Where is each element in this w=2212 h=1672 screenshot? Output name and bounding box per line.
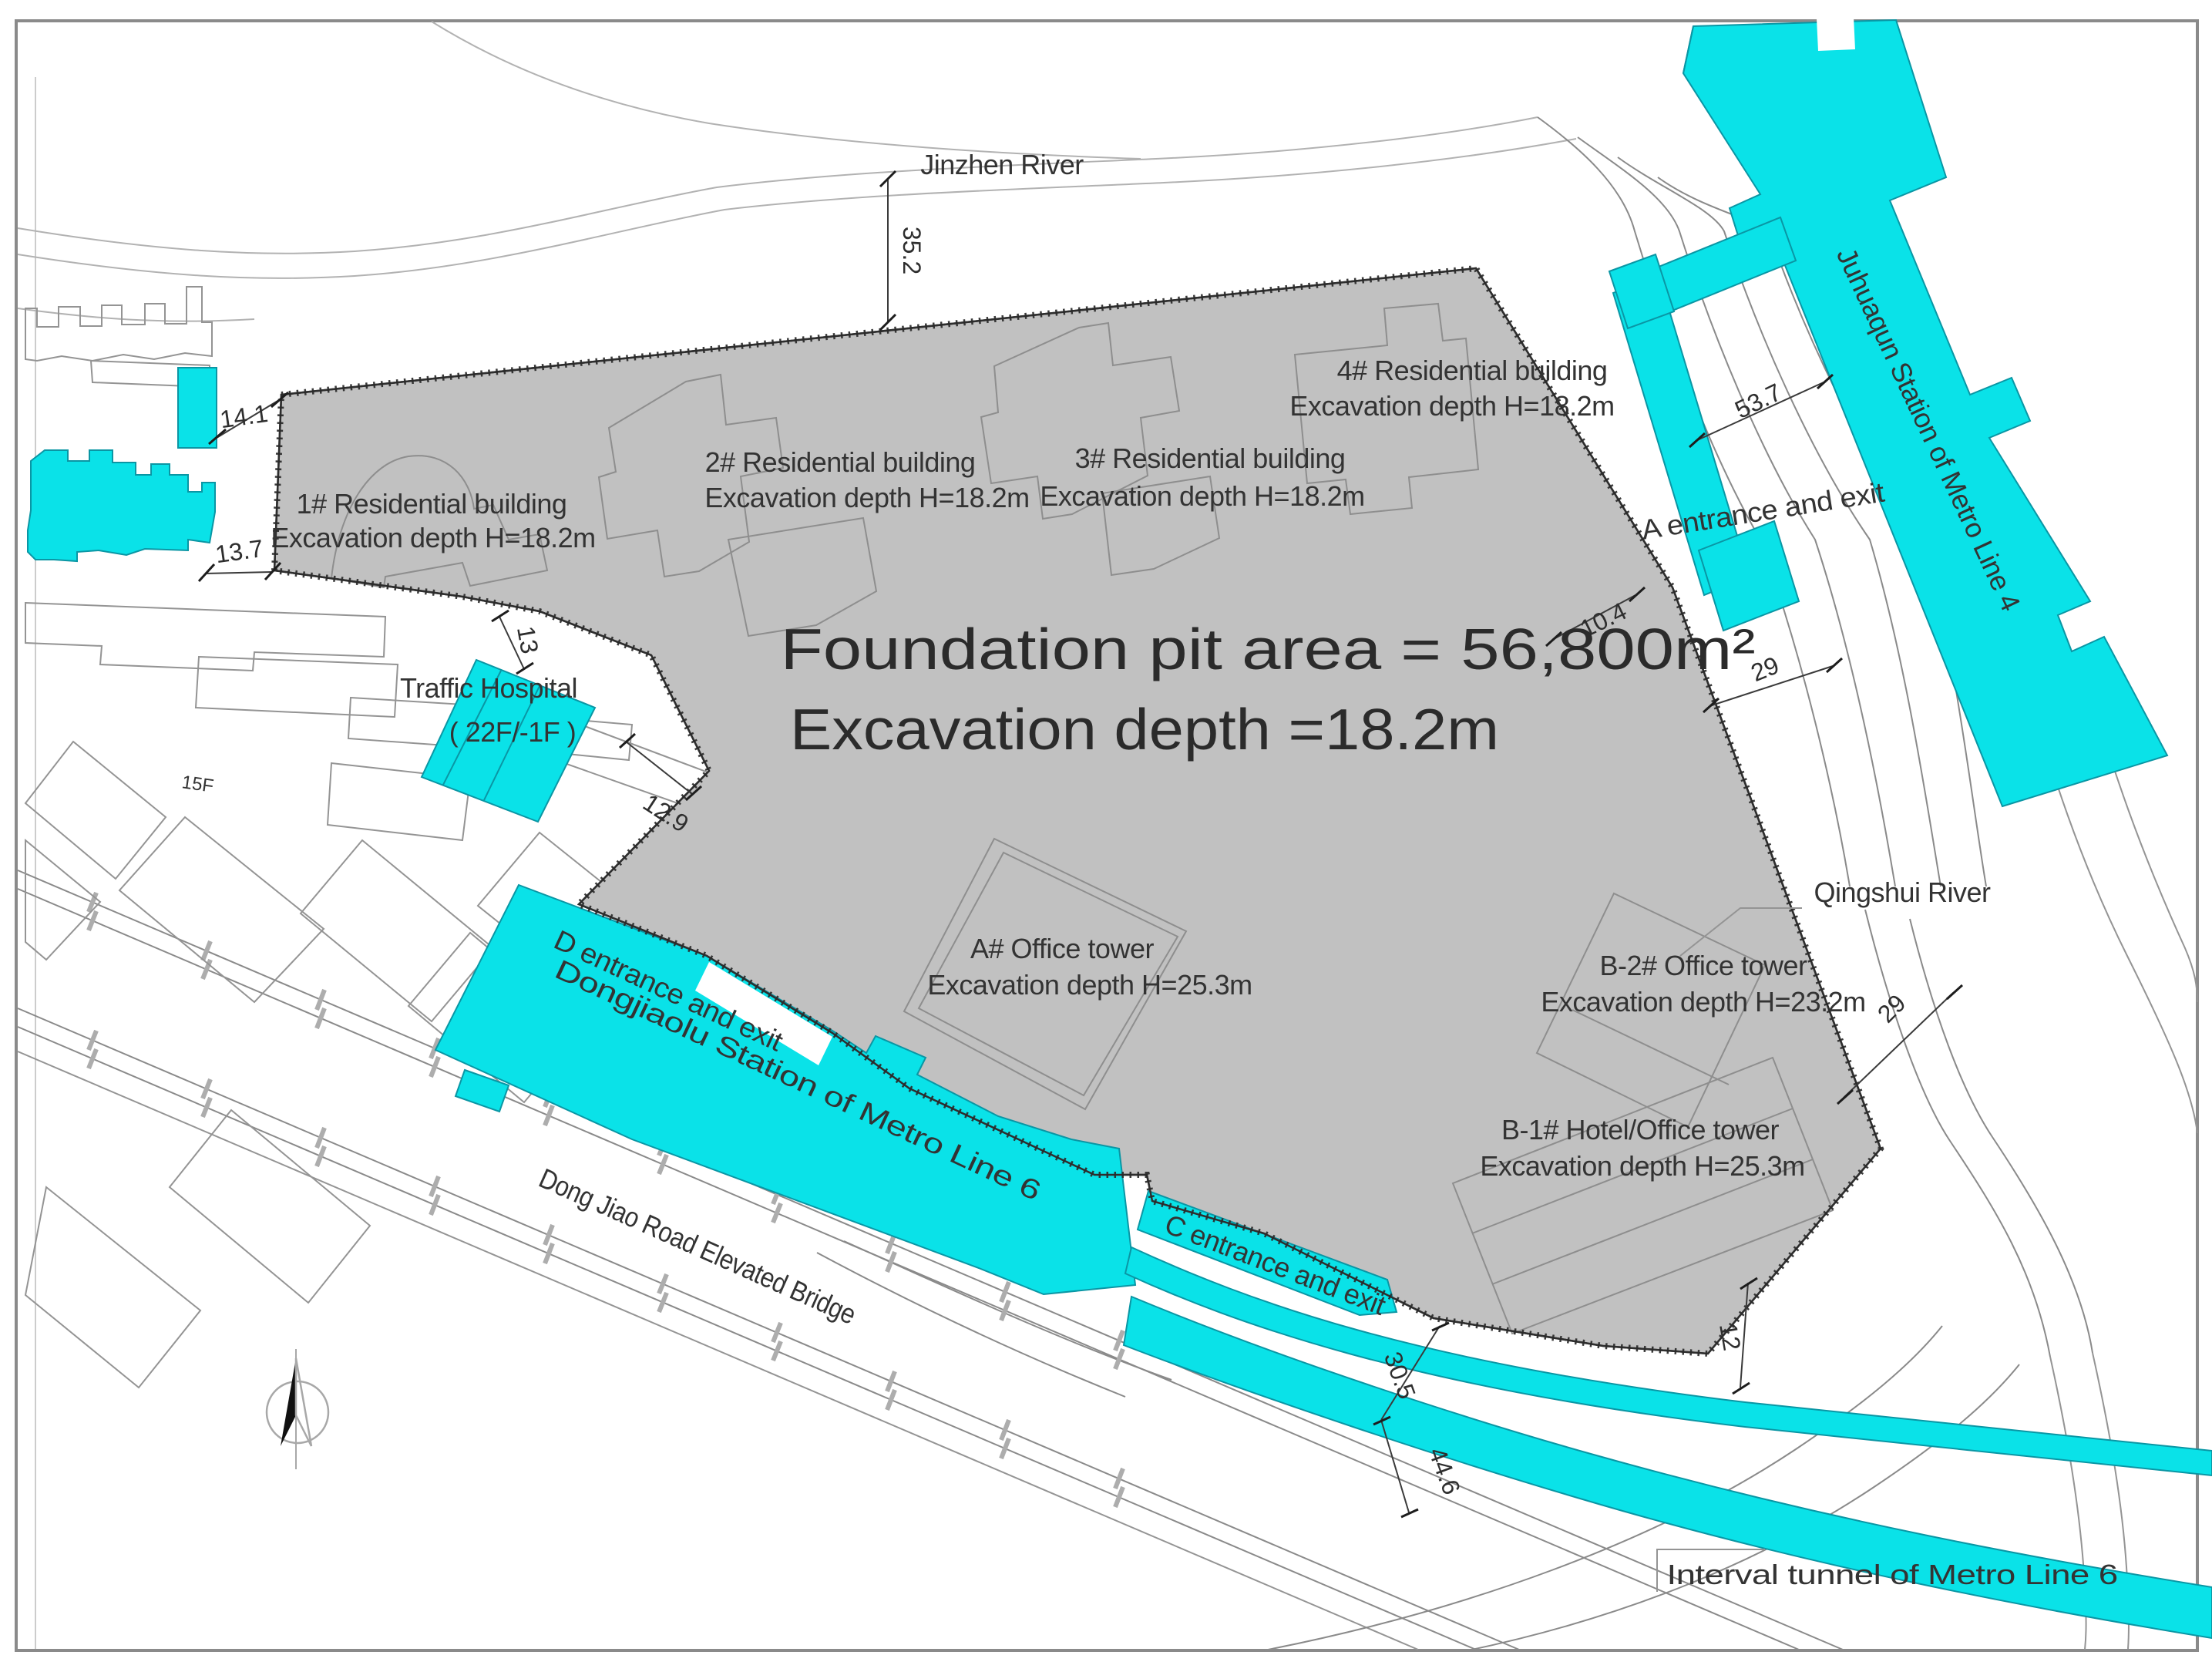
svg-text:Excavation depth H=18.2m: Excavation depth H=18.2m bbox=[704, 482, 1029, 513]
svg-text:Excavation depth H=18.2m: Excavation depth H=18.2m bbox=[1040, 480, 1364, 512]
svg-text:Qingshui River: Qingshui River bbox=[1814, 876, 1991, 908]
svg-text:15F: 15F bbox=[180, 772, 215, 796]
svg-text:A# Office tower: A# Office tower bbox=[970, 933, 1154, 964]
svg-text:13: 13 bbox=[512, 624, 544, 655]
svg-text:Foundation pit area = 56,800m²: Foundation pit area = 56,800m² bbox=[781, 617, 1756, 681]
svg-text:Excavation depth H=25.3m: Excavation depth H=25.3m bbox=[927, 969, 1252, 1001]
svg-text:12: 12 bbox=[1714, 1320, 1746, 1352]
svg-text:Excavation depth H=25.3m: Excavation depth H=25.3m bbox=[1480, 1150, 1804, 1182]
svg-text:Excavation depth H=23.2m: Excavation depth H=23.2m bbox=[1541, 986, 1865, 1018]
svg-text:Interval tunnel of Metro Line: Interval tunnel of Metro Line 6 bbox=[1667, 1559, 2118, 1590]
svg-text:3# Residential building: 3# Residential building bbox=[1075, 442, 1346, 474]
svg-text:B-2# Office tower: B-2# Office tower bbox=[1600, 950, 1807, 981]
svg-text:2# Residential building: 2# Residential building bbox=[705, 446, 976, 478]
svg-text:4# Residential building: 4# Residential building bbox=[1337, 355, 1608, 386]
svg-text:Excavation depth H=18.2m: Excavation depth H=18.2m bbox=[1289, 390, 1614, 422]
svg-text:B-1# Hotel/Office tower: B-1# Hotel/Office tower bbox=[1501, 1114, 1780, 1146]
svg-text:( 22F/-1F ): ( 22F/-1F ) bbox=[449, 716, 577, 748]
svg-text:Jinzhen River: Jinzhen River bbox=[920, 149, 1084, 180]
svg-text:35.2: 35.2 bbox=[898, 227, 926, 274]
svg-text:Traffic Hospital: Traffic Hospital bbox=[400, 672, 577, 704]
svg-text:1# Residential building: 1# Residential building bbox=[297, 488, 567, 520]
svg-text:Excavation depth =18.2m: Excavation depth =18.2m bbox=[790, 697, 1499, 762]
svg-text:Excavation depth H=18.2m: Excavation depth H=18.2m bbox=[271, 522, 595, 553]
